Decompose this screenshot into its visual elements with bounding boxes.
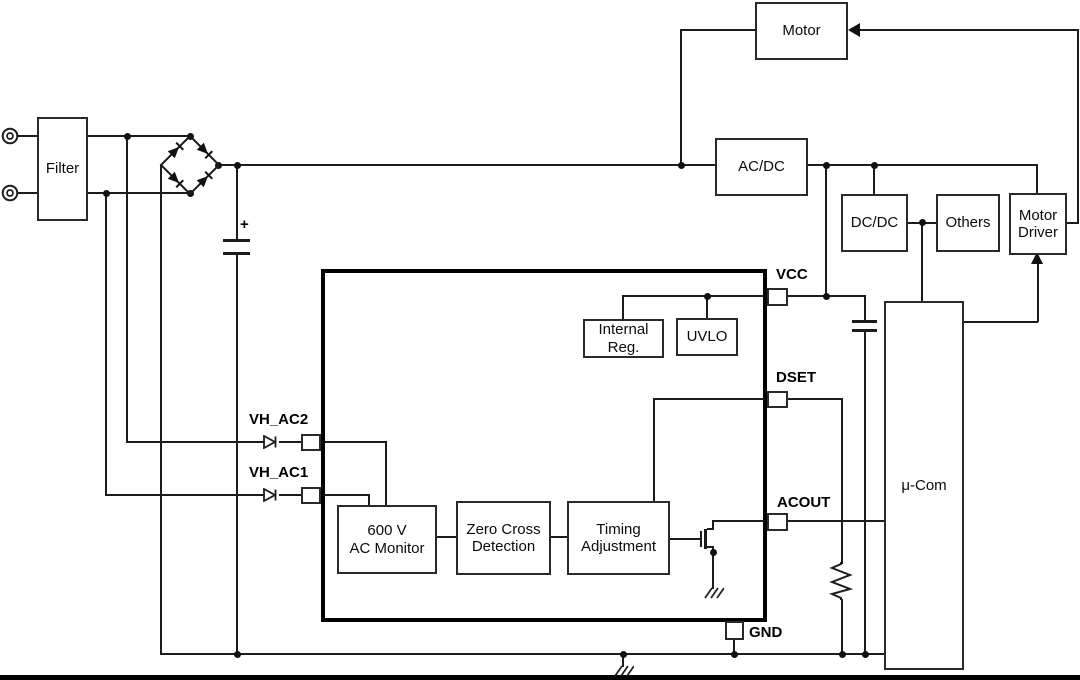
- resistor-icon: [828, 562, 854, 600]
- wire-acout: [788, 520, 884, 522]
- wire: [1037, 258, 1039, 322]
- vcc-capacitor-plate: [852, 329, 877, 332]
- wire: [864, 295, 866, 322]
- wire: [105, 193, 107, 496]
- junction-dot: [678, 162, 685, 169]
- bottom-border-bar: [0, 675, 1080, 680]
- wire: [841, 398, 843, 564]
- ac-input-terminal-icon: [1, 184, 19, 202]
- wire: [864, 332, 866, 655]
- wire-ground-bus: [160, 653, 884, 655]
- block-timing-label: Adjustment: [581, 538, 656, 555]
- wire: [808, 164, 1038, 166]
- block-dcdc: DC/DC: [841, 194, 908, 252]
- block-uvlo-label: UVLO: [687, 328, 728, 345]
- pin-label-acout: ACOUT: [777, 494, 830, 511]
- junction-dot: [103, 190, 110, 197]
- block-dcdc-label: DC/DC: [851, 214, 899, 231]
- block-motor-driver-label: Driver: [1018, 224, 1058, 241]
- wire: [1036, 164, 1038, 194]
- bulk-capacitor-plate: [223, 239, 250, 242]
- block-motor-label: Motor: [782, 22, 820, 39]
- junction-dot: [839, 651, 846, 658]
- wire: [236, 255, 238, 655]
- pin-label-vh-ac1: VH_AC1: [249, 464, 308, 481]
- wire: [873, 164, 875, 195]
- wire-dset: [787, 398, 843, 400]
- block-ac-monitor-label: AC Monitor: [349, 540, 424, 557]
- block-uvlo: UVLO: [676, 318, 738, 356]
- wire: [680, 29, 682, 166]
- block-timing-label: Timing: [596, 521, 640, 538]
- block-zero-cross-label: Zero Cross: [466, 521, 540, 538]
- block-motor-driver-label: Motor: [1019, 207, 1057, 224]
- block-ac-monitor: 600 V AC Monitor: [337, 505, 437, 574]
- arrowhead-into-motor: [848, 23, 860, 37]
- block-motor-driver: Motor Driver: [1009, 193, 1067, 255]
- capacitor-polarity-mark: +: [240, 216, 249, 233]
- wire: [921, 222, 923, 302]
- diode-icon: [262, 435, 280, 449]
- wire: [160, 165, 162, 655]
- ground-icon: [612, 664, 634, 678]
- wire: [680, 29, 756, 31]
- block-others: Others: [936, 194, 1000, 252]
- wire: [1077, 29, 1079, 224]
- block-acdc: AC/DC: [715, 138, 808, 196]
- wire: [854, 29, 1079, 31]
- pin-label-gnd: GND: [749, 624, 782, 641]
- pin-gnd: [725, 621, 744, 640]
- wire: [963, 321, 1038, 323]
- wire: [841, 599, 843, 655]
- junction-dot: [124, 133, 131, 140]
- wire: [825, 164, 827, 297]
- wire: [127, 441, 264, 443]
- bridge-rectifier-icon: [151, 126, 229, 204]
- junction-dot: [620, 651, 627, 658]
- block-motor: Motor: [755, 2, 848, 60]
- pin-vh-ac1: [301, 487, 321, 504]
- junction-dot: [862, 651, 869, 658]
- wire: [126, 136, 128, 443]
- block-ac-monitor-label: 600 V: [367, 522, 406, 539]
- pin-label-vcc: VCC: [776, 266, 808, 283]
- block-internal-reg-label: Internal: [598, 321, 648, 338]
- wire: [279, 441, 302, 443]
- pin-acout: [767, 513, 788, 531]
- block-others-label: Others: [945, 214, 990, 231]
- junction-dot: [234, 162, 241, 169]
- block-timing: Timing Adjustment: [567, 501, 670, 575]
- wire: [106, 494, 264, 496]
- wire: [17, 135, 37, 137]
- pin-label-dset: DSET: [776, 369, 816, 386]
- block-zero-cross: Zero Cross Detection: [456, 501, 551, 575]
- junction-dot: [823, 293, 830, 300]
- junction-dot: [234, 651, 241, 658]
- wire: [236, 165, 238, 239]
- wire: [17, 192, 37, 194]
- diode-icon: [262, 488, 280, 502]
- junction-dot: [731, 651, 738, 658]
- block-internal-reg-label: Reg.: [608, 339, 640, 356]
- bulk-capacitor-plate: [223, 252, 250, 255]
- block-ucom: μ-Com: [884, 301, 964, 670]
- pin-label-vh-ac2: VH_AC2: [249, 411, 308, 428]
- pin-vh-ac2: [301, 434, 321, 451]
- junction-dot: [871, 162, 878, 169]
- pin-dset: [767, 391, 788, 408]
- block-ucom-label: μ-Com: [901, 477, 946, 494]
- wire: [279, 494, 302, 496]
- pin-vcc: [767, 288, 788, 306]
- block-filter-label: Filter: [46, 160, 79, 177]
- wire-ac-main: [218, 164, 716, 166]
- schematic-canvas: +: [0, 0, 1080, 680]
- block-internal-reg: Internal Reg.: [583, 319, 664, 358]
- block-zero-cross-label: Detection: [472, 538, 535, 555]
- vcc-capacitor-plate: [852, 320, 877, 323]
- junction-dot: [919, 219, 926, 226]
- ac-input-terminal-icon: [1, 127, 19, 145]
- block-filter: Filter: [37, 117, 88, 221]
- junction-dot: [823, 162, 830, 169]
- block-acdc-label: AC/DC: [738, 158, 785, 175]
